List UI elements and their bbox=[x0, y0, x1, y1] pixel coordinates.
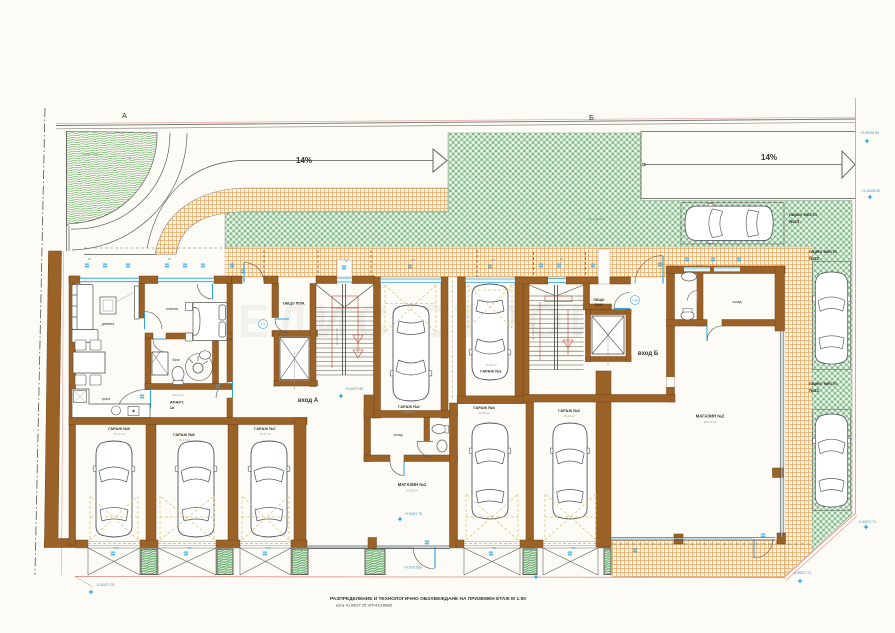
svg-text:Т-4: Т-4 bbox=[261, 323, 266, 327]
svg-text:240: 240 bbox=[114, 546, 119, 550]
svg-text:+0.00/27.75: +0.00/27.75 bbox=[404, 512, 422, 516]
svg-text:ГАРАЖ №2: ГАРАЖ №2 bbox=[398, 404, 420, 409]
svg-text:парко място: парко място bbox=[809, 249, 837, 254]
svg-text:АПАРТ.: АПАРТ. bbox=[170, 400, 184, 405]
svg-text:240: 240 bbox=[411, 258, 416, 262]
svg-text:+1.10/25.00: +1.10/25.00 bbox=[861, 189, 880, 193]
svg-text:14%: 14% bbox=[296, 156, 312, 165]
svg-text:240: 240 bbox=[571, 546, 576, 550]
svg-text:+0.00/27.85: +0.00/27.85 bbox=[345, 387, 363, 391]
svg-text:15,17 м²: 15,17 м² bbox=[113, 432, 124, 436]
svg-text:спалня: спалня bbox=[166, 307, 178, 311]
svg-text:склад: склад bbox=[393, 433, 402, 437]
svg-text:МАГАЗИН №1: МАГАЗИН №1 bbox=[398, 482, 427, 487]
svg-text:15,43 м²: 15,43 м² bbox=[563, 414, 574, 418]
svg-text:РАЗПРЕДЕЛЕНИЕ И ТЕХНОЛОГИЧНО: РАЗПРЕДЕЛЕНИЕ И ТЕХНОЛОГИЧНО ОБЗАВЕЖДАНЕ… bbox=[330, 596, 526, 602]
svg-text:ОБЩО ПОМ.: ОБЩО ПОМ. bbox=[283, 302, 305, 306]
svg-text:затревяване: затревяване bbox=[588, 217, 606, 221]
svg-text:240: 240 bbox=[492, 546, 497, 550]
svg-text:ОБЩО: ОБЩО bbox=[593, 298, 605, 302]
svg-text:15,45 м²: 15,45 м² bbox=[478, 411, 489, 415]
svg-text:-0.40/27.75: -0.40/27.75 bbox=[96, 583, 114, 587]
svg-text:16,45 м²: 16,45 м² bbox=[485, 363, 496, 367]
svg-text:кота +0,00/27,75 ЗП=413: кота +0,00/27,75 ЗП=413,60м2 bbox=[336, 603, 393, 608]
svg-text:+2.29/29.90: +2.29/29.90 bbox=[860, 131, 879, 135]
svg-text:ГАРАЖ №3: ГАРАЖ №3 bbox=[558, 408, 580, 413]
svg-text:Б: Б bbox=[589, 113, 594, 122]
svg-text:240: 240 bbox=[187, 546, 192, 550]
svg-text:тревна площ: тревна площ bbox=[82, 152, 99, 156]
svg-text:240: 240 bbox=[266, 546, 271, 550]
svg-text:30,23x17,30: 30,23x17,30 bbox=[335, 328, 339, 345]
svg-text:№21: №21 bbox=[809, 388, 820, 393]
svg-text:МАГАЗИН №2: МАГАЗИН №2 bbox=[696, 414, 725, 419]
svg-text:№23: №23 bbox=[789, 219, 800, 224]
svg-text:Т-4б: Т-4б bbox=[632, 299, 639, 303]
svg-text:кухня: кухня bbox=[102, 397, 110, 401]
svg-text:30,23x17,30: 30,23x17,30 bbox=[531, 323, 535, 340]
svg-text:вход Б: вход Б bbox=[638, 351, 659, 357]
svg-text:54,28 м²: 54,28 м² bbox=[406, 489, 417, 493]
svg-text:вход А: вход А bbox=[298, 398, 319, 404]
svg-text:1а: 1а bbox=[170, 405, 175, 410]
svg-text:№22: №22 bbox=[809, 256, 820, 261]
svg-text:ПОМ.: ПОМ. bbox=[595, 303, 604, 307]
svg-text:240: 240 bbox=[491, 258, 496, 262]
svg-text:ГАРАЖ №1: ГАРАЖ №1 bbox=[480, 369, 502, 374]
svg-text:112,76 м²: 112,76 м² bbox=[704, 420, 717, 424]
svg-text:14%: 14% bbox=[761, 153, 777, 162]
svg-text:ГАРАЖ №5: ГАРАЖ №5 bbox=[108, 426, 130, 431]
svg-text:баня: баня bbox=[172, 358, 179, 362]
svg-text:ГАРАЖ №7: ГАРАЖ №7 bbox=[254, 426, 276, 431]
svg-text:15,17 м²: 15,17 м² bbox=[178, 438, 189, 442]
svg-text:ГАРАЖ №4: ГАРАЖ №4 bbox=[473, 405, 495, 410]
svg-text:+0.00/27(B): +0.00/27(B) bbox=[404, 566, 422, 570]
svg-text:склад: склад bbox=[732, 300, 741, 304]
svg-text:А: А bbox=[122, 111, 127, 120]
svg-text:ГАРАЖ №6: ГАРАЖ №6 bbox=[173, 432, 195, 437]
svg-text:15,41 м²: 15,41 м² bbox=[403, 410, 414, 414]
svg-text:парко място: парко място bbox=[789, 212, 817, 217]
svg-text:39,14 м²: 39,14 м² bbox=[172, 393, 183, 397]
svg-text:15,17 м²: 15,17 м² bbox=[259, 432, 270, 436]
svg-text:парко място: парко място bbox=[809, 381, 837, 386]
svg-text:дневна: дневна bbox=[102, 322, 116, 326]
svg-text:-0.40/27.71: -0.40/27.71 bbox=[858, 520, 876, 524]
svg-text:-0.45/27.71: -0.45/27.71 bbox=[793, 571, 811, 575]
